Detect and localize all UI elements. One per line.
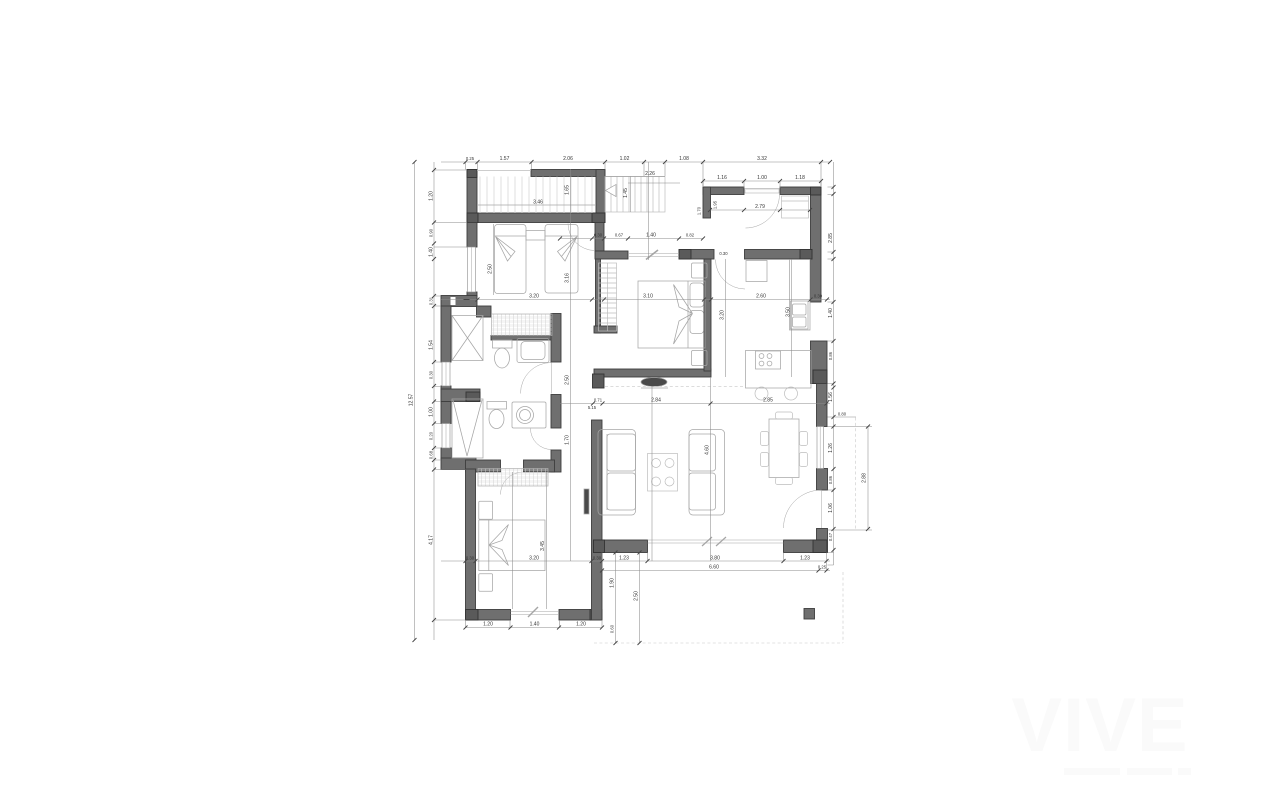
svg-text:4.17: 4.17 <box>429 535 435 545</box>
svg-text:1.23: 1.23 <box>800 556 810 562</box>
svg-text:1.02: 1.02 <box>620 156 630 162</box>
svg-text:2.85: 2.85 <box>828 233 834 243</box>
svg-text:12.57: 12.57 <box>409 394 415 407</box>
svg-text:0.30: 0.30 <box>593 556 602 561</box>
svg-text:1.40: 1.40 <box>828 308 834 318</box>
svg-text:1.65: 1.65 <box>565 185 571 195</box>
svg-text:0.30: 0.30 <box>594 233 603 238</box>
svg-text:3.46: 3.46 <box>533 200 543 206</box>
svg-text:2.06: 2.06 <box>563 156 573 162</box>
svg-text:1.20: 1.20 <box>576 622 586 628</box>
svg-text:1.00: 1.00 <box>429 407 435 417</box>
svg-text:2.26: 2.26 <box>645 171 655 177</box>
svg-text:0.31: 0.31 <box>429 296 434 305</box>
svg-text:0.90: 0.90 <box>429 228 434 237</box>
svg-text:0.25: 0.25 <box>818 565 827 570</box>
svg-text:VIVE: VIVE <box>1011 683 1188 768</box>
svg-text:0.67: 0.67 <box>615 233 624 238</box>
svg-text:0.86: 0.86 <box>828 351 833 360</box>
svg-text:3.50: 3.50 <box>786 307 792 317</box>
svg-text:1.40: 1.40 <box>530 622 540 628</box>
svg-text:1.70: 1.70 <box>565 435 571 445</box>
svg-text:3.16: 3.16 <box>565 273 571 283</box>
svg-text:0.30: 0.30 <box>429 370 434 379</box>
svg-text:0.47: 0.47 <box>828 532 833 541</box>
svg-text:1.54: 1.54 <box>429 340 435 350</box>
svg-text:1.26: 1.26 <box>828 443 834 453</box>
svg-text:0.80: 0.80 <box>838 412 847 417</box>
svg-text:0.25: 0.25 <box>466 156 475 161</box>
svg-text:3.80: 3.80 <box>710 556 720 562</box>
svg-text:1.45: 1.45 <box>623 188 629 198</box>
svg-text:1.90: 1.90 <box>610 578 616 588</box>
svg-text:0.68: 0.68 <box>429 450 434 459</box>
svg-text:1.16: 1.16 <box>717 175 727 181</box>
svg-text:3.45: 3.45 <box>540 541 546 551</box>
svg-text:1.23: 1.23 <box>619 556 629 562</box>
svg-text:2.50: 2.50 <box>634 591 640 601</box>
svg-text:1.56: 1.56 <box>828 392 834 402</box>
svg-text:2.50: 2.50 <box>565 375 571 385</box>
svg-text:2.88: 2.88 <box>862 473 868 483</box>
svg-text:1.95: 1.95 <box>713 200 718 209</box>
svg-text:3.20: 3.20 <box>720 310 726 320</box>
svg-text:6.60: 6.60 <box>709 565 719 571</box>
svg-text:3.32: 3.32 <box>757 156 767 162</box>
svg-text:1.40: 1.40 <box>646 233 656 239</box>
svg-text:1.00: 1.00 <box>757 175 767 181</box>
svg-text:1.70: 1.70 <box>697 206 702 215</box>
svg-text:5.15: 5.15 <box>588 405 597 410</box>
svg-text:1.08: 1.08 <box>679 156 689 162</box>
svg-text:0.30: 0.30 <box>719 251 728 256</box>
svg-text:1.18: 1.18 <box>795 175 805 181</box>
svg-text:1.06: 1.06 <box>828 503 834 513</box>
svg-text:2.85: 2.85 <box>763 398 773 404</box>
svg-text:1.40: 1.40 <box>429 247 435 257</box>
svg-text:0.20: 0.20 <box>429 431 434 440</box>
svg-text:0.71: 0.71 <box>594 398 603 403</box>
svg-text:0.82: 0.82 <box>686 233 695 238</box>
svg-text:2.50: 2.50 <box>488 264 494 274</box>
svg-text:3.20: 3.20 <box>529 294 539 300</box>
svg-text:4.60: 4.60 <box>705 445 711 455</box>
svg-text:3.10: 3.10 <box>643 294 653 300</box>
svg-text:0.86: 0.86 <box>828 475 833 484</box>
svg-text:1.20: 1.20 <box>483 622 493 628</box>
svg-text:2.60: 2.60 <box>756 294 766 300</box>
svg-text:0.30: 0.30 <box>814 294 823 299</box>
svg-text:3.20: 3.20 <box>529 556 539 562</box>
svg-text:0.30: 0.30 <box>466 556 475 561</box>
svg-text:2.79: 2.79 <box>755 204 765 210</box>
svg-text:2.84: 2.84 <box>651 398 661 404</box>
svg-text:0.60: 0.60 <box>610 624 615 633</box>
svg-text:1.57: 1.57 <box>500 156 510 162</box>
svg-text:1.20: 1.20 <box>429 191 435 201</box>
